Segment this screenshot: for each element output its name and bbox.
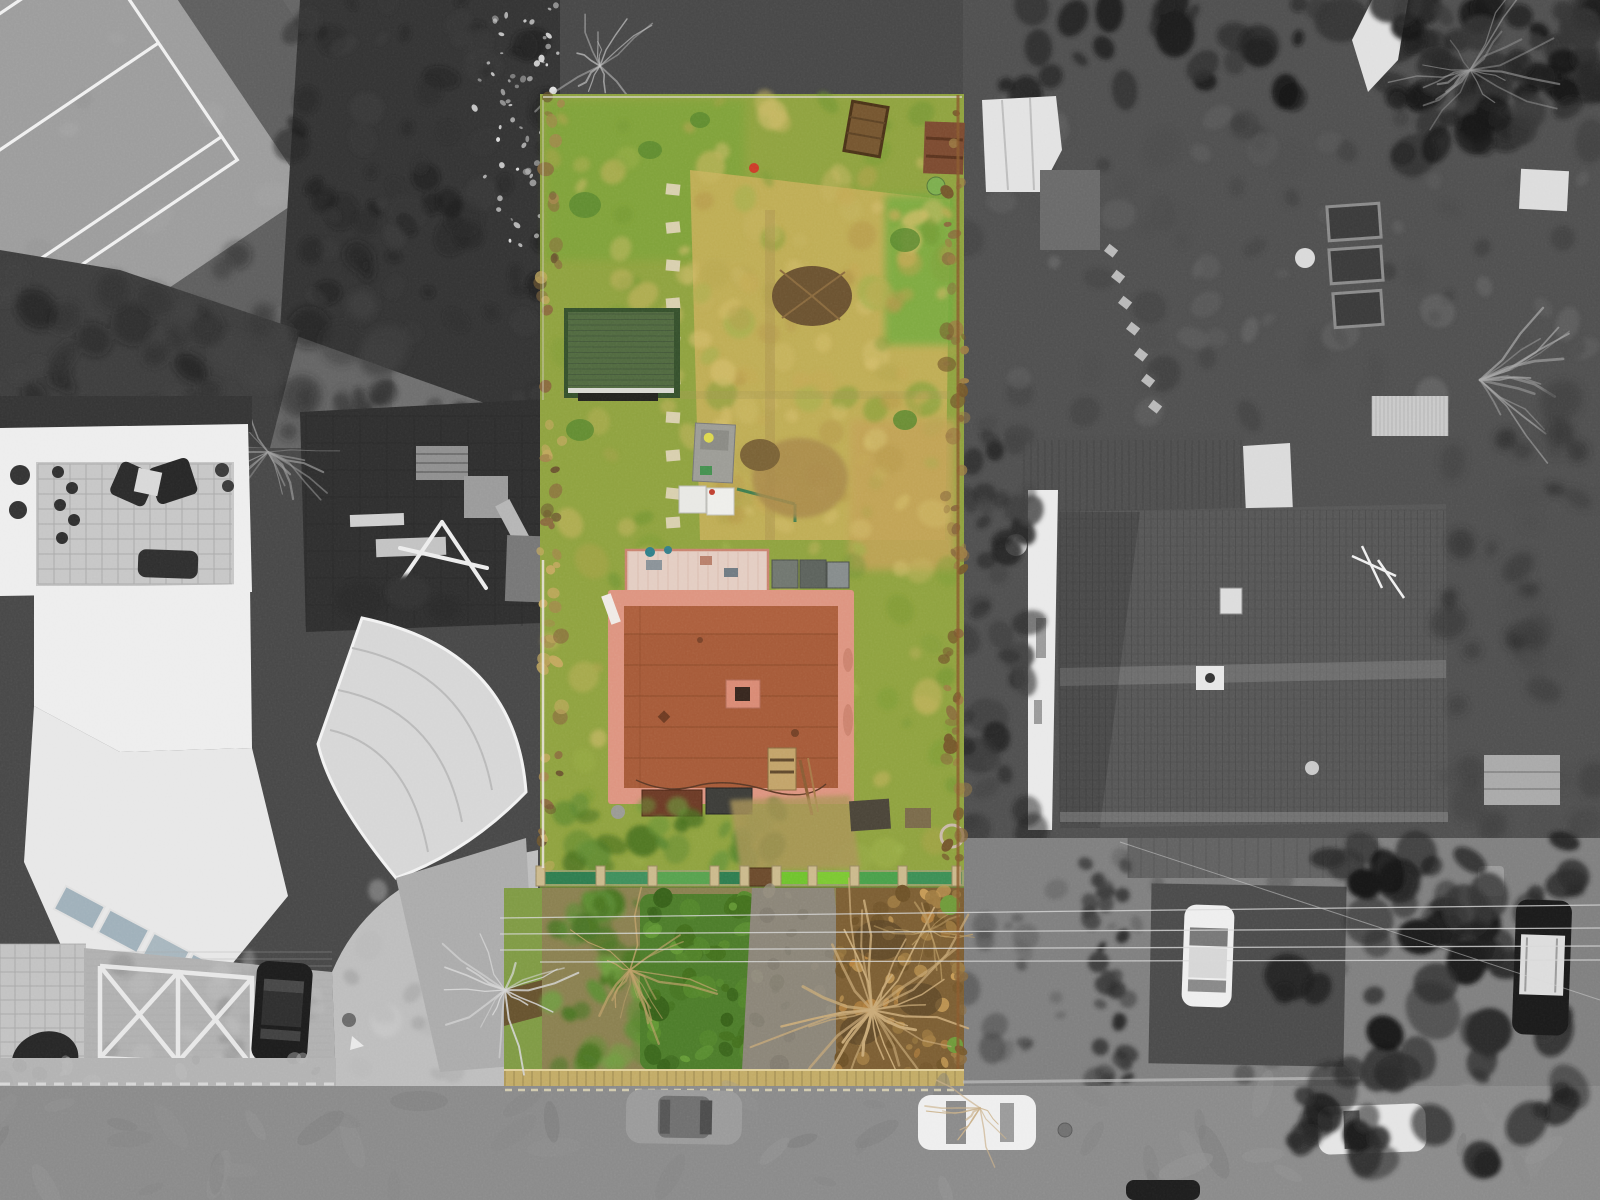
aerial-photo xyxy=(0,0,1600,1200)
film-grain xyxy=(0,0,1600,1200)
